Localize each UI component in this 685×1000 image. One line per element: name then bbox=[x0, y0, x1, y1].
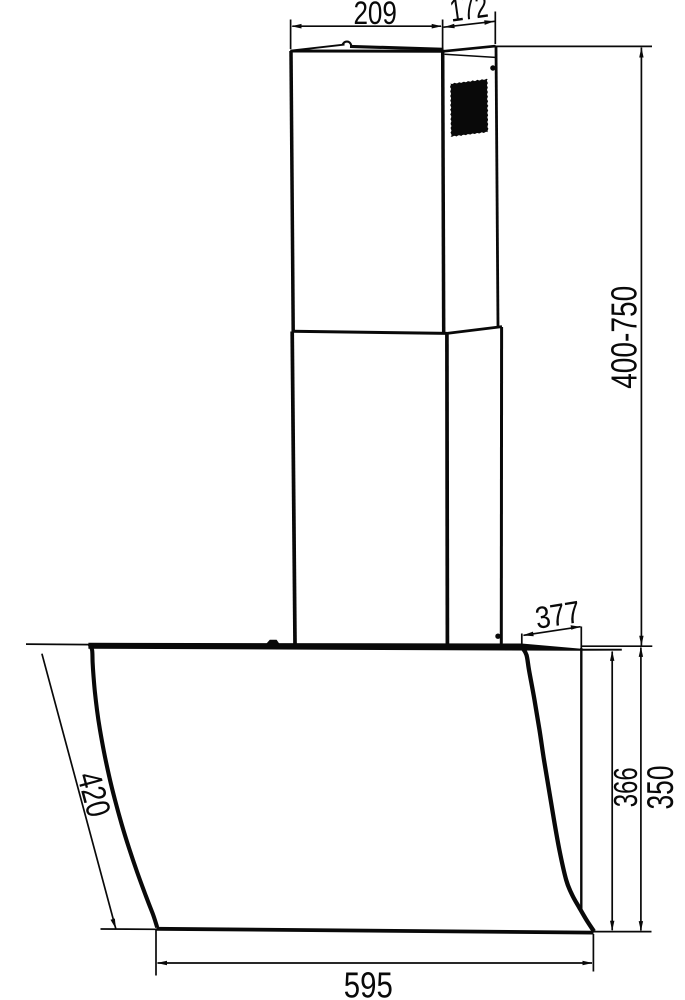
svg-text:350: 350 bbox=[640, 766, 681, 810]
svg-text:400-750: 400-750 bbox=[603, 286, 644, 389]
svg-text:172: 172 bbox=[447, 0, 490, 29]
svg-text:377: 377 bbox=[533, 594, 583, 636]
svg-text:595: 595 bbox=[344, 965, 393, 1000]
svg-text:209: 209 bbox=[353, 0, 397, 31]
svg-text:366: 366 bbox=[607, 767, 644, 807]
